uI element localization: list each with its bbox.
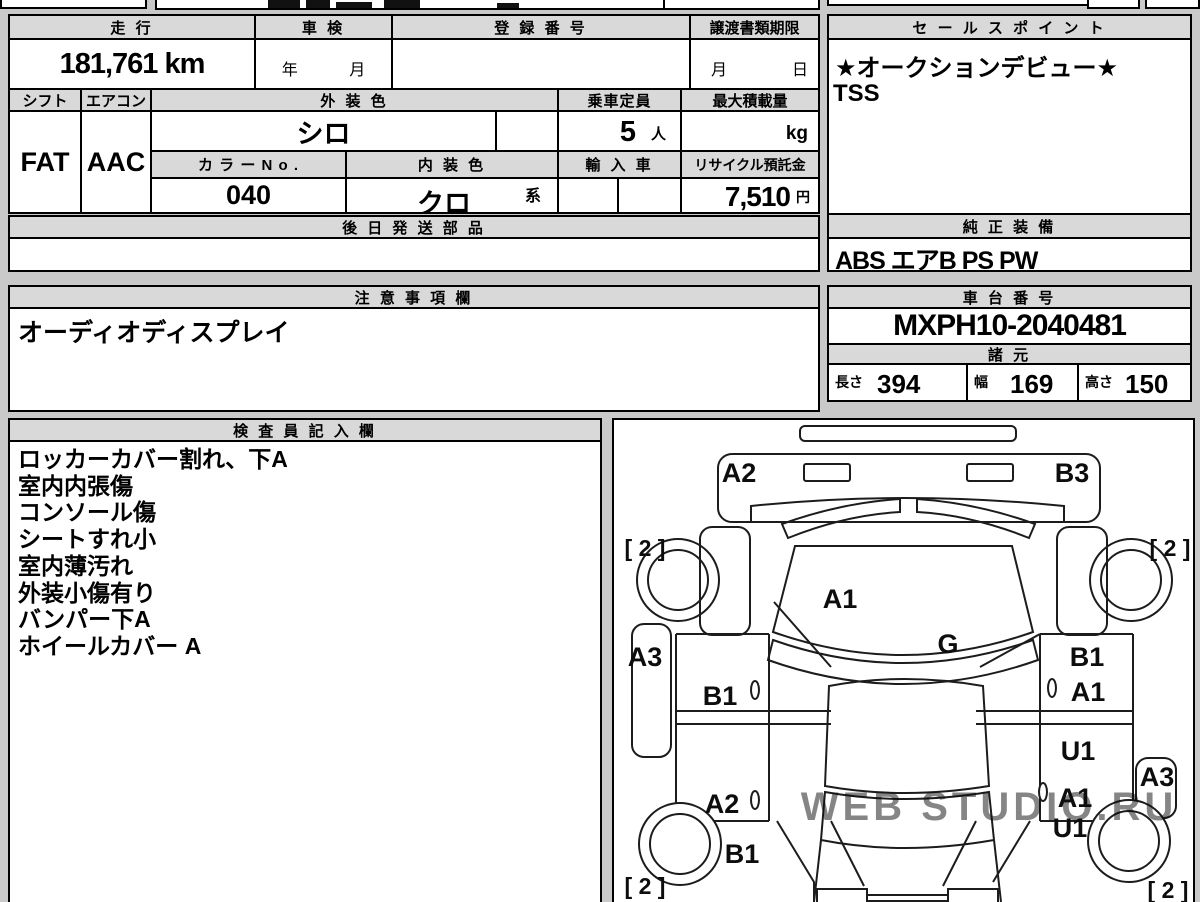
truncated-cell (1087, 0, 1140, 9)
deadline-label: 譲渡書類期限 (709, 17, 799, 38)
inspector-notes: ロッカーカバー割れ、下A室内内張傷コンソール傷シートすれ小室内薄汚れ外装小傷有り… (8, 440, 602, 902)
damage-label: B1 (725, 839, 760, 869)
hood (773, 546, 1033, 655)
equipment-header: 純 正 装 備 (827, 213, 1192, 239)
front-bumper (718, 454, 1100, 522)
cowl-left (782, 499, 900, 538)
sales-point-label: セ ー ル ス ポ イ ン ト (912, 17, 1106, 38)
inspector-note-line: 室内内張傷 (18, 473, 288, 500)
tread-depth-label: [ 2 ] (1150, 535, 1191, 561)
exterior-color-value: シロ (150, 110, 497, 152)
recycle-number: 7,510 (725, 181, 790, 213)
deadline-month-placeholder: 月 (711, 56, 727, 80)
specs-header: 諸 元 (827, 343, 1192, 365)
rear-lamp-right (948, 889, 998, 902)
damage-label: A1 (823, 584, 858, 614)
recycle-label: リサイクル預託金 (694, 155, 805, 175)
spec-length-value: 394 (877, 369, 920, 400)
trunk-sides (814, 840, 1001, 902)
inspector-note-line: ロッカーカバー割れ、下A (18, 446, 288, 473)
shift-value: FAT (8, 110, 82, 214)
truncated-cell (663, 0, 820, 10)
right-rear-diagonals (943, 821, 1030, 886)
interior-color-suffix: 系 (525, 182, 541, 206)
capacity-label: 乗車定員 (587, 90, 651, 111)
inspector-lines: ロッカーカバー割れ、下A室内内張傷コンソール傷シートすれ小室内薄汚れ外装小傷有り… (18, 446, 288, 660)
spec-length-label: 長さ (835, 372, 863, 392)
spec-width-label: 幅 (974, 372, 988, 392)
shift-label: シフト (22, 90, 67, 111)
interior-color-header: 内 装 色 (345, 150, 559, 179)
chassis-label: 車 台 番 号 (963, 287, 1057, 308)
front-grille (800, 426, 1016, 441)
equipment-label: 純 正 装 備 (963, 216, 1057, 237)
inspector-note-line: 室内薄汚れ (18, 553, 288, 580)
shift-text: FAT (21, 147, 70, 178)
exterior-color-label: 外 装 色 (320, 90, 388, 111)
rear-lamp-left (817, 889, 867, 902)
tread-depth-label: [ 2 ] (625, 873, 666, 899)
inspector-note-line: 外装小傷有り (18, 580, 288, 607)
damage-label: A1 (1071, 677, 1106, 707)
interior-color-text: クロ (417, 182, 471, 214)
capacity-header: 乗車定員 (557, 88, 682, 112)
chassis-value: MXPH10-2040481 (827, 307, 1192, 345)
damage-label: B1 (703, 681, 738, 711)
max-load-value: kg (680, 110, 820, 152)
inspector-label: 検 査 員 記 入 欄 (233, 420, 377, 441)
inspector-note-line: バンパー下A (18, 606, 288, 633)
truncated-text-fragment (336, 2, 372, 8)
auction-sheet: { "info": { "mileage_label": "走 行", "mil… (0, 0, 1200, 900)
import-value-left (557, 177, 619, 214)
exterior-color-header: 外 装 色 (150, 88, 559, 112)
car-diagram: WEB STUDIO.RU A2 B3 [ 2 ] [ 2 ] A1 A3 G … (614, 420, 1193, 902)
mileage-value: 181,761 km (8, 38, 256, 90)
shaken-year-placeholder: 年 (282, 56, 298, 80)
exterior-color-sub-cell (495, 110, 559, 152)
shaken-header: 車 検 (254, 14, 393, 40)
rear-left-wheel-inner (650, 814, 710, 874)
inspector-note-line: ホイールカバー A (18, 633, 288, 660)
spec-width-value: 169 (1010, 369, 1053, 400)
shaken-label: 車 検 (302, 17, 345, 38)
notes-label: 注 意 事 項 欄 (355, 287, 474, 308)
notes-value: オーディオディスプレイ (8, 307, 820, 412)
recycle-value: 7,510 円 (680, 177, 820, 214)
truncated-text-fragment (384, 0, 420, 8)
later-parts-label: 後 日 発 送 部 品 (342, 217, 486, 238)
recycle-unit: 円 (796, 187, 810, 207)
headlight-right (967, 464, 1013, 481)
roof (825, 679, 989, 793)
deadline-value: 月 日 (689, 38, 820, 90)
capacity-value: 5 人 (557, 110, 682, 152)
aircon-text: AAC (87, 147, 146, 178)
chassis-header: 車 台 番 号 (827, 285, 1192, 309)
specs-label: 諸 元 (988, 344, 1031, 365)
damage-label: A2 (722, 458, 757, 488)
import-value-right (617, 177, 682, 214)
import-header: 輸 入 車 (557, 150, 682, 179)
registration-header: 登 録 番 号 (391, 14, 691, 40)
damage-label: U1 (1061, 736, 1096, 766)
max-load-unit: kg (786, 123, 808, 145)
registration-value (391, 38, 691, 90)
spec-height-label: 高さ (1085, 372, 1113, 392)
inspector-note-line: コンソール傷 (18, 499, 288, 526)
deadline-header: 譲渡書類期限 (689, 14, 820, 40)
shaken-month-placeholder: 月 (349, 56, 365, 80)
aircon-value: AAC (80, 110, 152, 214)
cowl-right (917, 499, 1035, 538)
windshield (768, 640, 1038, 684)
notes-header: 注 意 事 項 欄 (8, 285, 820, 309)
spec-width: 幅 169 (966, 363, 1079, 402)
equipment-text: ABS エアB PS PW (835, 241, 1037, 272)
sales-point-line1: ★オークションデビュー★ (835, 48, 1118, 83)
sales-point-header: セ ー ル ス ポ イ ン ト (827, 14, 1192, 40)
max-load-header: 最大積載量 (680, 88, 820, 112)
car-diagram-panel: WEB STUDIO.RU A2 B3 [ 2 ] [ 2 ] A1 A3 G … (612, 418, 1195, 902)
spec-height: 高さ 150 (1077, 363, 1192, 402)
aircon-label: エアコン (86, 90, 146, 111)
door-handle (1048, 679, 1056, 697)
shaken-value: 年 月 (254, 38, 393, 90)
truncated-cell (827, 0, 1090, 6)
inspector-header: 検 査 員 記 入 欄 (8, 418, 602, 442)
damage-label: G (937, 629, 958, 659)
mileage-header: 走 行 (8, 14, 256, 40)
truncated-text-fragment (497, 3, 519, 8)
damage-label: A1 (1058, 783, 1093, 813)
spec-height-value: 150 (1125, 369, 1168, 400)
truncated-text-fragment (306, 0, 330, 8)
truncated-cell (1145, 0, 1200, 9)
sales-point-line2: TSS (833, 80, 880, 108)
color-no-label: カ ラ ー N o . (198, 154, 299, 175)
spec-length: 長さ 394 (827, 363, 968, 402)
rear-center-lines (867, 895, 948, 901)
color-no-header: カ ラ ー N o . (150, 150, 347, 179)
aircon-header: エアコン (80, 88, 152, 112)
truncated-text-fragment (268, 0, 300, 8)
capacity-number: 5 (620, 116, 636, 149)
equipment-value: ABS エアB PS PW (827, 237, 1192, 272)
door-handle (751, 791, 759, 809)
deadline-day-placeholder: 日 (792, 56, 808, 80)
later-parts-header: 後 日 発 送 部 品 (8, 215, 820, 239)
chassis-text: MXPH10-2040481 (893, 309, 1126, 343)
interior-color-label: 内 装 色 (418, 154, 486, 175)
color-no-value: 040 (150, 177, 347, 214)
headlight-left (804, 464, 850, 481)
max-load-label: 最大積載量 (712, 90, 787, 111)
damage-label: B1 (1070, 642, 1105, 672)
notes-text: オーディオディスプレイ (18, 313, 290, 349)
damage-label: A3 (1140, 762, 1175, 792)
registration-label: 登 録 番 号 (494, 17, 588, 38)
door-handle (751, 681, 759, 699)
inspector-note-line: シートすれ小 (18, 526, 288, 553)
mileage-text: 181,761 km (60, 48, 205, 81)
later-parts-value (8, 237, 820, 272)
tread-depth-label: [ 2 ] (625, 535, 666, 561)
damage-label: U1 (1053, 813, 1088, 843)
exterior-color-text: シロ (297, 112, 351, 151)
color-no-text: 040 (226, 180, 271, 211)
sales-point-value: ★オークションデビュー★ TSS (827, 38, 1192, 215)
damage-label: B3 (1055, 458, 1090, 488)
truncated-cell (0, 0, 147, 9)
import-label: 輸 入 車 (585, 154, 653, 175)
capacity-unit: 人 (651, 123, 666, 144)
tread-depth-label: [ 2 ] (1148, 877, 1189, 902)
damage-label: A2 (705, 789, 740, 819)
damage-label: A3 (628, 642, 663, 672)
interior-color-value: クロ 系 (345, 177, 559, 214)
shift-header: シフト (8, 88, 82, 112)
mileage-label: 走 行 (110, 17, 153, 38)
watermark: WEB STUDIO.RU (801, 785, 1177, 829)
recycle-header: リサイクル預託金 (680, 150, 820, 179)
